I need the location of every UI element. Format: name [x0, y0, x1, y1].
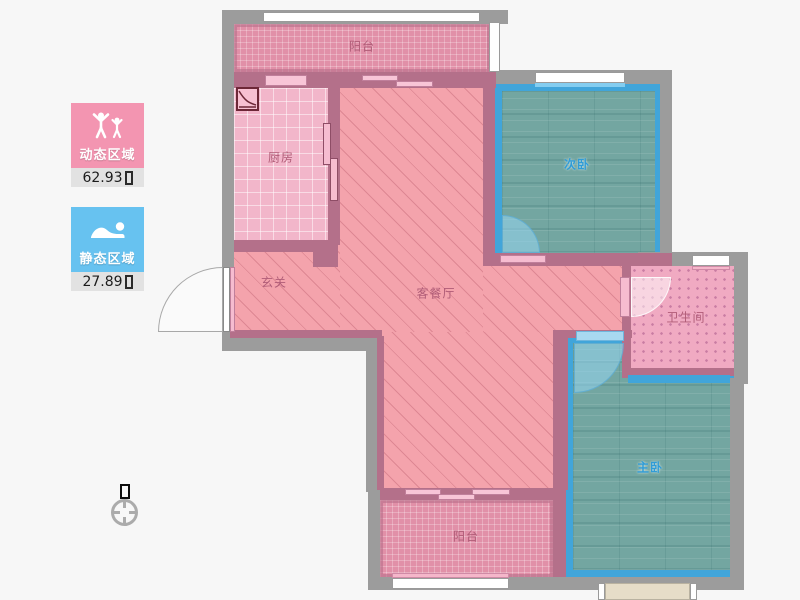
wall [368, 490, 380, 590]
wall [553, 330, 568, 490]
window [535, 72, 625, 83]
compass-tick [129, 511, 137, 514]
bathroom-door [620, 277, 630, 317]
wall [222, 10, 234, 267]
legend-value-static: 27.89 [71, 272, 144, 291]
bedroom-master-door [576, 331, 624, 341]
compass-tick [123, 517, 126, 525]
compass-tick [112, 511, 120, 514]
wall [483, 84, 495, 266]
sliding-door [265, 75, 307, 86]
sliding-door [438, 494, 475, 500]
missing-glyph-box [125, 275, 133, 289]
wall [734, 252, 748, 384]
window [392, 578, 509, 589]
room-label-bedroom-second: 次卧 [564, 156, 590, 173]
floor-plan: 阳台 厨房 玄关 客餐厅 次卧 卫生间 主卧 阳台 动态区域 62.93 静 [0, 0, 800, 600]
wall [222, 338, 384, 351]
compass-tick [123, 500, 126, 508]
legend-value-dynamic: 62.93 [71, 168, 144, 187]
stove-icon [236, 87, 259, 115]
window [692, 255, 730, 266]
room-label-balcony-top: 阳台 [349, 38, 375, 55]
sliding-door [405, 489, 441, 495]
bay-window-frame [690, 583, 697, 600]
room-label-kitchen: 厨房 [268, 149, 294, 166]
legend-label-static: 静态区域 [71, 248, 144, 267]
window [489, 22, 500, 72]
room-living-dining[interactable] [382, 332, 553, 488]
wall [230, 330, 382, 338]
room-label-balcony-bottom: 阳台 [453, 528, 479, 545]
missing-glyph-box [125, 171, 133, 185]
window-sill [692, 266, 730, 270]
wall [660, 70, 672, 266]
bay-window-frame [598, 583, 605, 600]
compass-north-glyph [120, 484, 130, 499]
window [263, 12, 480, 22]
room-label-bathroom: 卫生间 [666, 309, 705, 326]
sliding-door [472, 489, 510, 495]
sliding-door [396, 81, 433, 87]
wall [553, 488, 566, 577]
room-label-living-dining: 客餐厅 [416, 285, 455, 302]
wall [313, 243, 338, 267]
area-value: 27.89 [82, 274, 122, 290]
room-living-dining[interactable] [340, 88, 488, 332]
room-label-bedroom-master: 主卧 [637, 459, 663, 476]
wall [366, 336, 377, 492]
bay-window [605, 583, 690, 600]
wall [730, 378, 744, 590]
entrance-door-leaf [223, 267, 230, 332]
legend-badge-dynamic[interactable]: 动态区域 [71, 103, 144, 168]
room-living-dining[interactable] [483, 266, 622, 332]
legend-label-dynamic: 动态区域 [71, 144, 144, 163]
legend-badge-static[interactable]: 静态区域 [71, 207, 144, 272]
area-value: 62.93 [82, 170, 122, 186]
wall [628, 375, 730, 383]
sliding-door [362, 75, 398, 81]
room-label-foyer: 玄关 [261, 274, 287, 291]
window-sill [535, 83, 625, 87]
people-active-icon [88, 111, 128, 139]
wall [377, 336, 384, 490]
entrance-door-arc [158, 267, 223, 332]
bedroom-second-door [500, 255, 546, 263]
person-resting-icon [88, 215, 128, 243]
entrance-door [230, 267, 235, 332]
sliding-door [330, 158, 338, 201]
